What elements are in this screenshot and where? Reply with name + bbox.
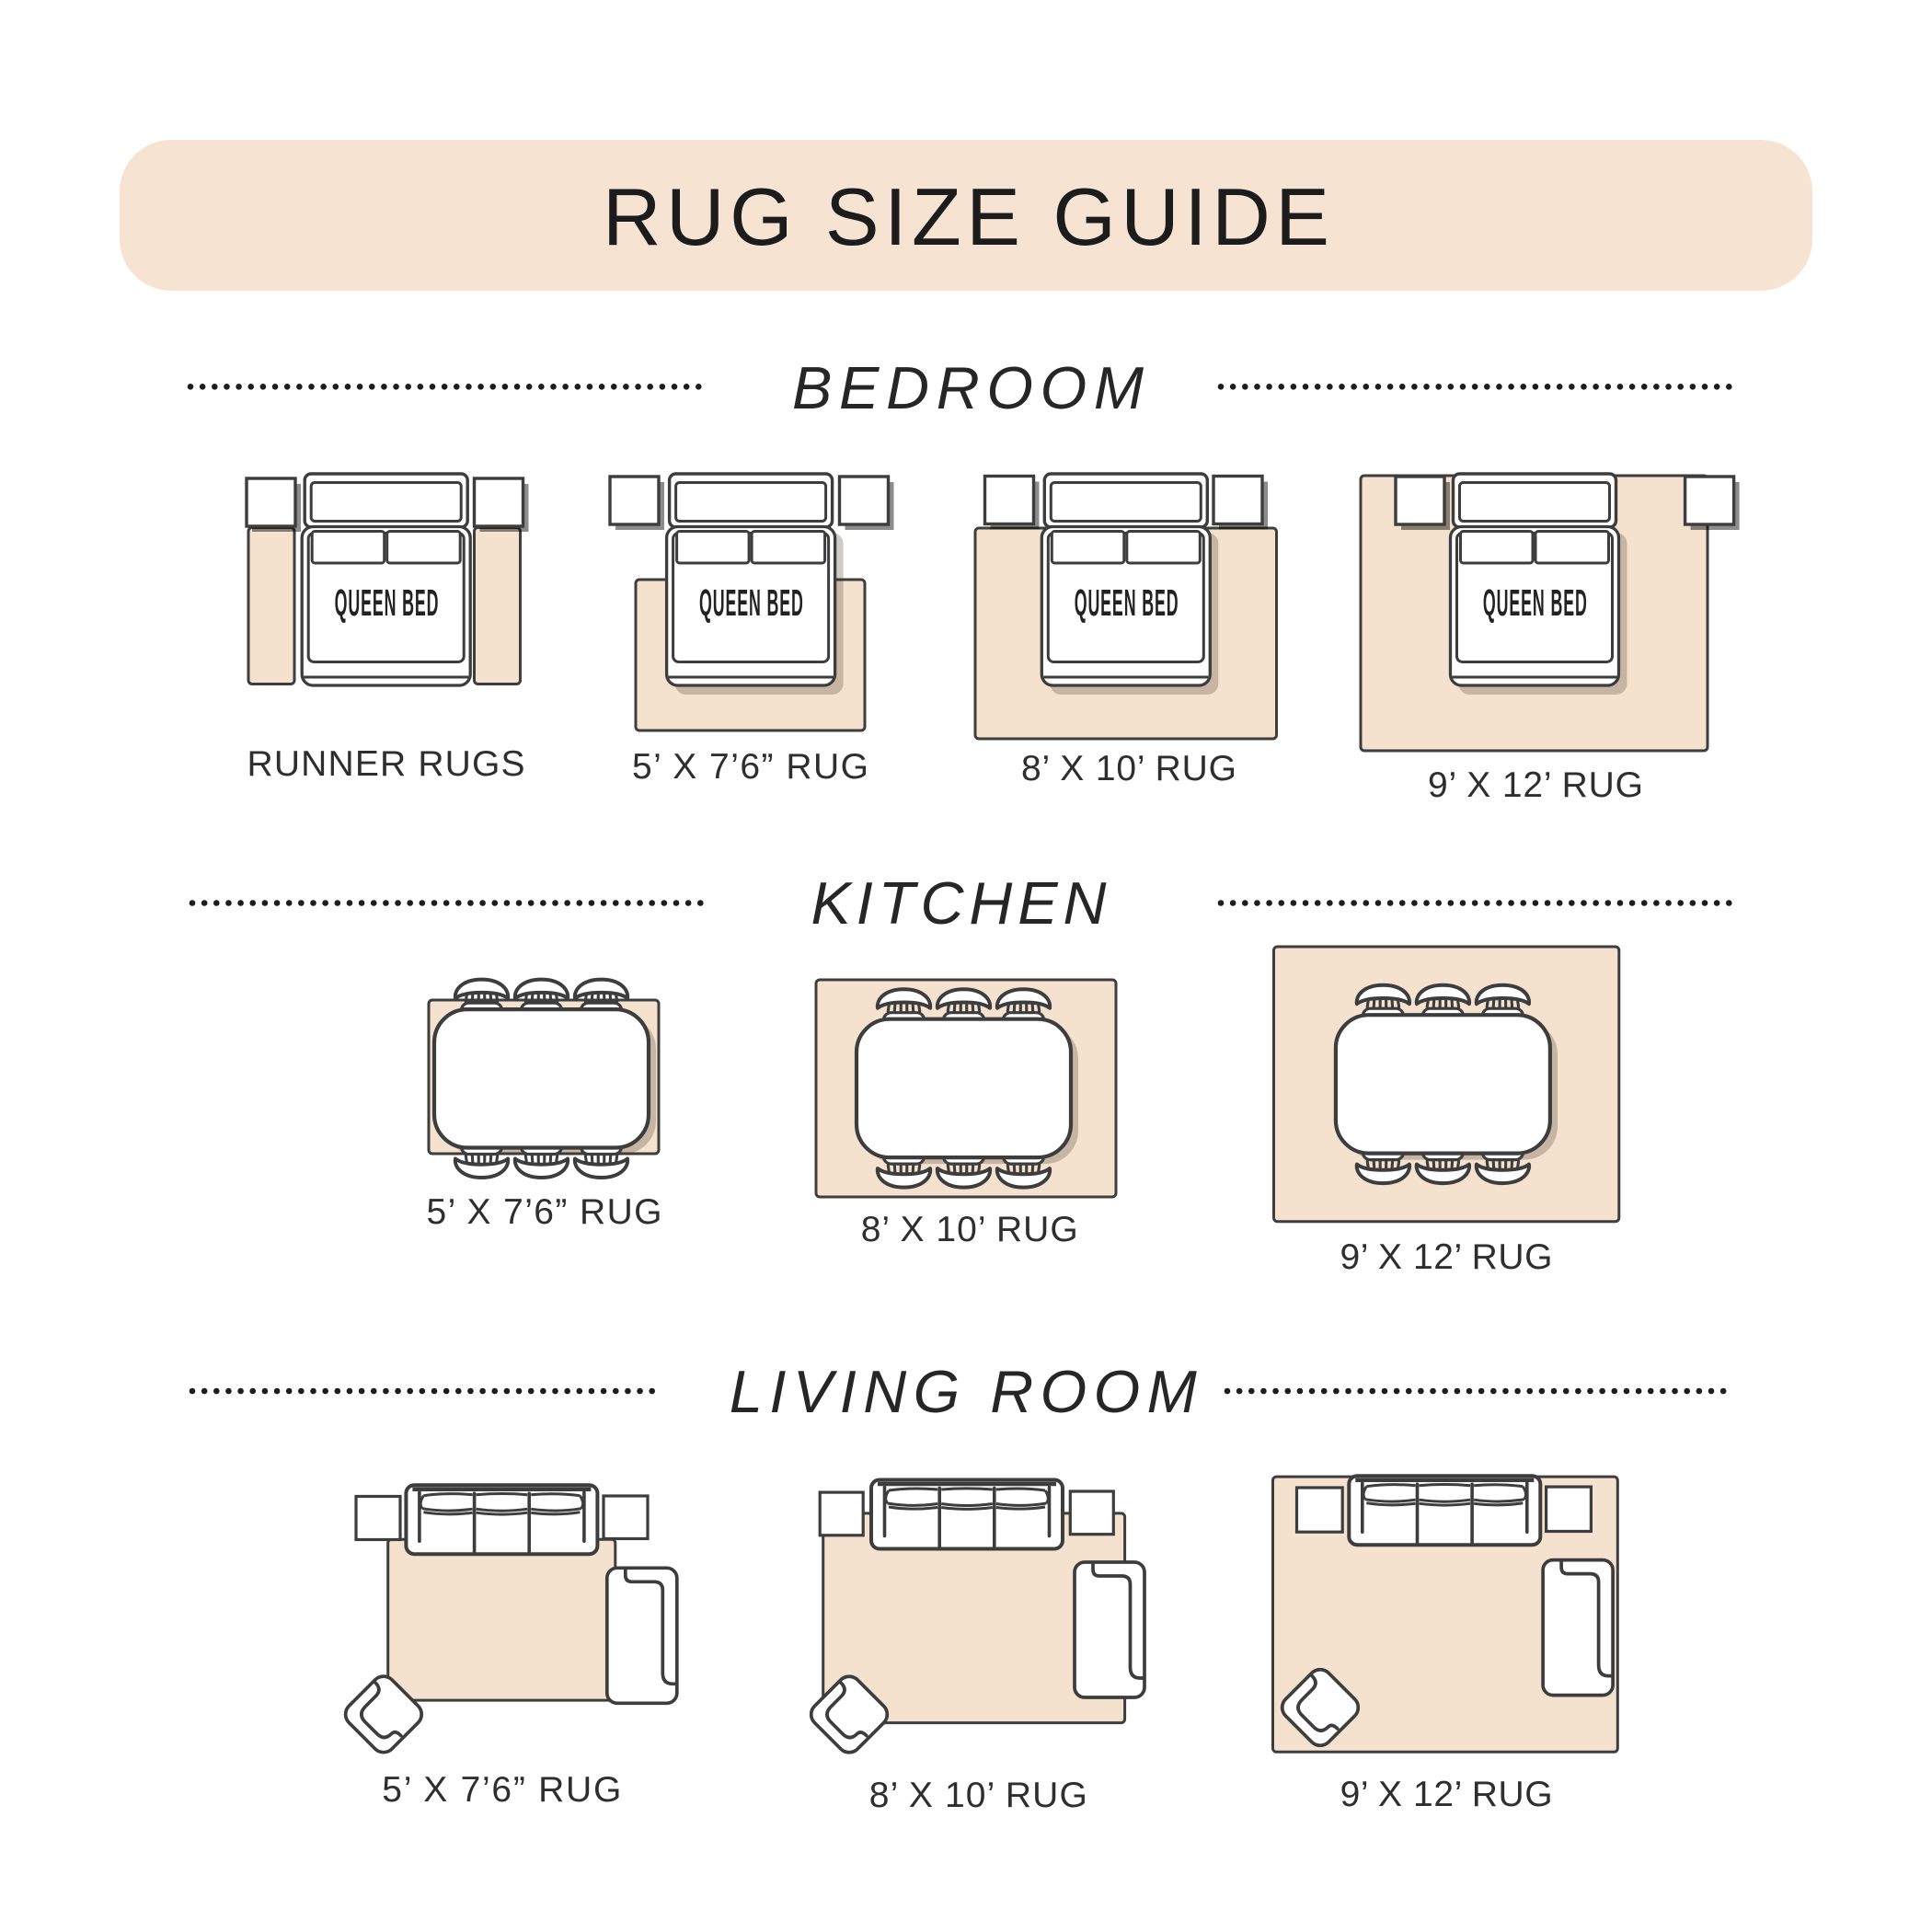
svg-text:5’ X 7’6” RUG: 5’ X 7’6” RUG: [427, 1192, 662, 1232]
svg-text:5’ X 7’6” RUG: 5’ X 7’6” RUG: [382, 1770, 621, 1810]
svg-text:8’ X 10’ RUG: 8’ X 10’ RUG: [1021, 749, 1236, 788]
svg-text:5’ X 7’6” RUG: 5’ X 7’6” RUG: [632, 747, 868, 787]
svg-text:9’ X 12’ RUG: 9’ X 12’ RUG: [1428, 765, 1643, 805]
svg-text:RUNNER RUGS: RUNNER RUGS: [247, 744, 525, 784]
svg-text:8’ X 10’ RUG: 8’ X 10’ RUG: [869, 1776, 1087, 1815]
svg-text:9’ X 12’ RUG: 9’ X 12’ RUG: [1340, 1775, 1553, 1814]
svg-text:9’ X 12’ RUG: 9’ X 12’ RUG: [1340, 1237, 1553, 1277]
svg-text:RUG SIZE GUIDE: RUG SIZE GUIDE: [603, 171, 1329, 262]
svg-text:8’ X 10’ RUG: 8’ X 10’ RUG: [861, 1210, 1078, 1249]
